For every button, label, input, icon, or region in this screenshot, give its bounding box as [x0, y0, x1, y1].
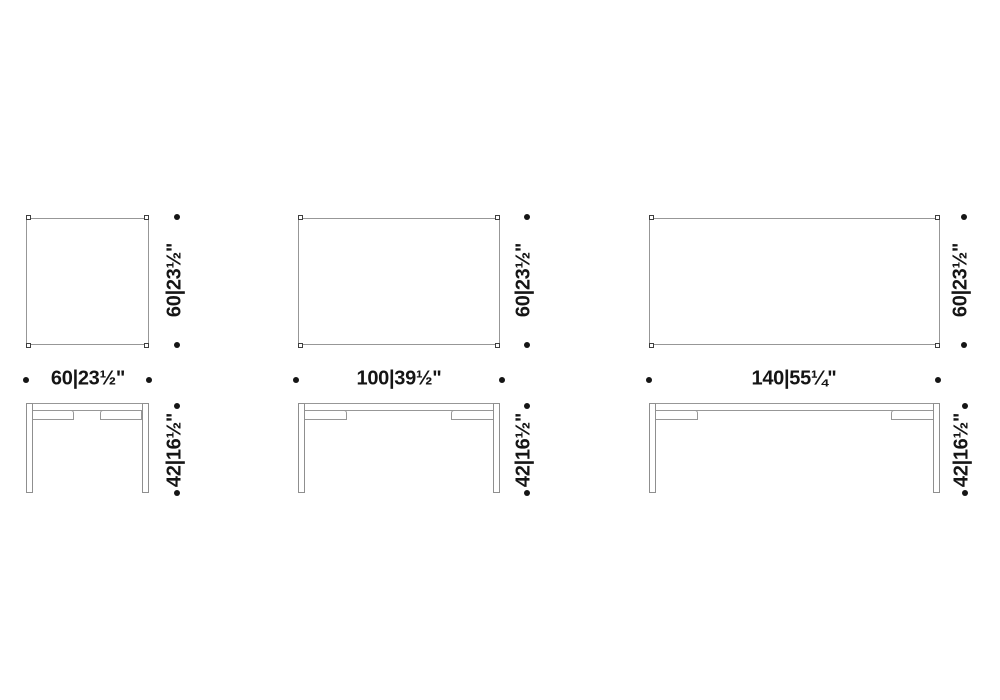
front-leg-left [298, 403, 305, 493]
depth-dimension-label: 60|23½" [950, 243, 973, 317]
apron-rail-left [655, 410, 698, 420]
leg-cap-bottom-right [144, 343, 149, 348]
dimension-marker-dot [962, 490, 968, 496]
leg-cap-bottom-right [935, 343, 940, 348]
dimension-marker-dot [174, 342, 180, 348]
height-dimension-label: 42|16½" [164, 413, 187, 487]
drawing-canvas: 60|23½" 60|23½" 42|16½" 60|23½" 100|39½" [0, 0, 1000, 700]
leg-cap-bottom-left [26, 343, 31, 348]
dimension-marker-dot [961, 342, 967, 348]
apron-rail-right [891, 410, 934, 420]
leg-cap-top-right [495, 215, 500, 220]
top-view-outline [298, 218, 500, 345]
apron-rail-right [451, 410, 494, 420]
dimension-marker-dot [646, 377, 652, 383]
dimension-marker-dot [146, 377, 152, 383]
leg-cap-top-left [649, 215, 654, 220]
height-dimension-label: 42|16½" [513, 413, 536, 487]
dimension-marker-dot [174, 214, 180, 220]
top-view-outline [26, 218, 149, 345]
front-leg-right [933, 403, 940, 493]
leg-cap-bottom-right [495, 343, 500, 348]
width-dimension-label: 100|39½" [357, 368, 442, 391]
depth-dimension-label: 60|23½" [513, 243, 536, 317]
apron-rail-left [304, 410, 347, 420]
dimension-marker-dot [961, 214, 967, 220]
leg-cap-top-left [298, 215, 303, 220]
front-leg-left [649, 403, 656, 493]
leg-cap-top-right [144, 215, 149, 220]
dimension-marker-dot [293, 377, 299, 383]
front-leg-left [26, 403, 33, 493]
dimension-marker-dot [23, 377, 29, 383]
apron-rail-right [100, 410, 142, 420]
depth-dimension-label: 60|23½" [164, 243, 187, 317]
dimension-marker-dot [524, 342, 530, 348]
leg-cap-top-right [935, 215, 940, 220]
dimension-marker-dot [524, 403, 530, 409]
apron-rail-left [32, 410, 74, 420]
dimension-marker-dot [524, 490, 530, 496]
dimension-marker-dot [935, 377, 941, 383]
leg-cap-bottom-left [649, 343, 654, 348]
dimension-marker-dot [524, 214, 530, 220]
width-dimension-label: 60|23½" [51, 368, 125, 391]
dimension-marker-dot [174, 490, 180, 496]
leg-cap-bottom-left [298, 343, 303, 348]
front-leg-right [142, 403, 149, 493]
dimension-marker-dot [174, 403, 180, 409]
front-leg-right [493, 403, 500, 493]
dimension-marker-dot [962, 403, 968, 409]
dimension-marker-dot [499, 377, 505, 383]
top-view-outline [649, 218, 940, 345]
height-dimension-label: 42|16½" [951, 413, 974, 487]
width-dimension-label: 140|55¼" [752, 368, 837, 391]
leg-cap-top-left [26, 215, 31, 220]
